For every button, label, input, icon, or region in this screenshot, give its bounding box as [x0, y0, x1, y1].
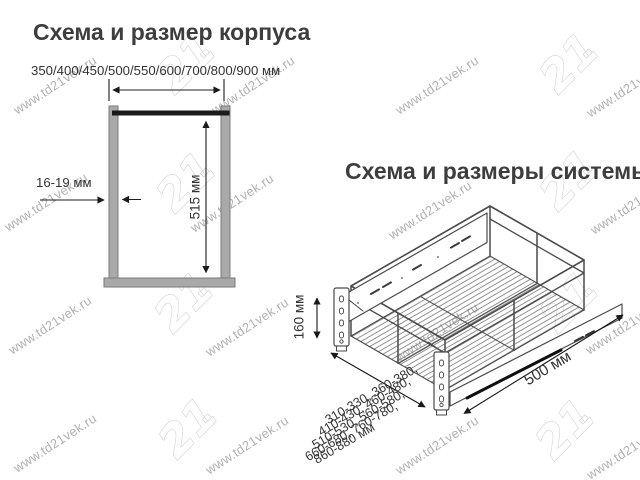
bottom-panel [104, 278, 235, 287]
page: www.td21vek.ruwww.td21vek.ruwww.td21vek.… [0, 0, 640, 480]
panel-thickness-label: 16-19 мм [36, 175, 92, 190]
right-panel [221, 106, 230, 278]
cabinet-width-options-label: 350/400/450/500/550/600/700/800/900 мм [31, 63, 280, 78]
diagram-content: Схема и размер корпуса 350/400/450/500/5… [0, 0, 640, 480]
cabinet-section-title: Схема и размер корпуса [33, 19, 310, 46]
cabinet-inner-height-label: 515 мм [188, 162, 203, 232]
system-section-title: Схема и размеры системы [345, 158, 640, 185]
left-panel [109, 106, 118, 278]
cabinet-panels [104, 106, 235, 287]
top-rail-bar [112, 111, 230, 116]
system-height-label: 160 мм [292, 282, 307, 352]
